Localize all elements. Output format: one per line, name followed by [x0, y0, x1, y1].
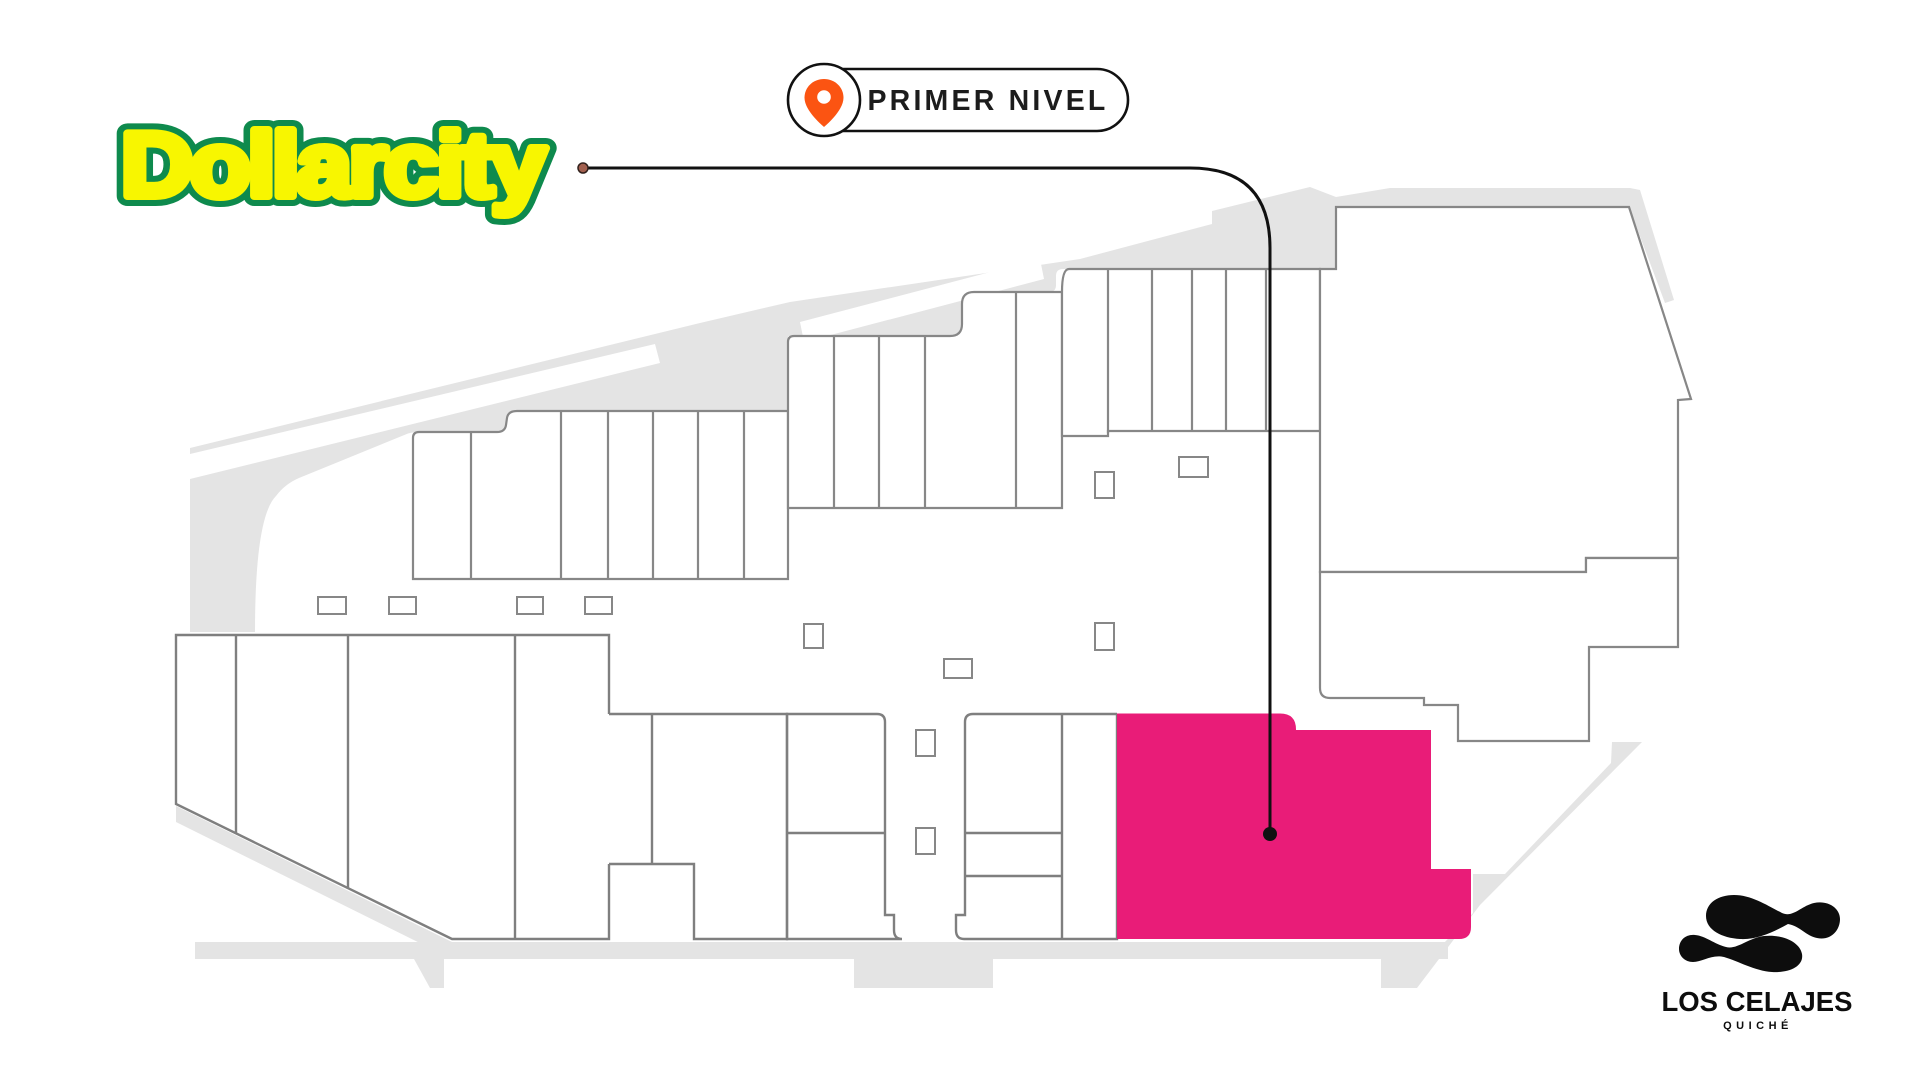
svg-text:Dollarcity: Dollarcity	[121, 115, 547, 216]
svg-text:PRIMER NIVEL: PRIMER NIVEL	[867, 85, 1108, 117]
svg-text:LOS CELAJES: LOS CELAJES	[1661, 986, 1852, 1017]
svg-text:QUICHÉ: QUICHÉ	[1723, 1019, 1793, 1032]
